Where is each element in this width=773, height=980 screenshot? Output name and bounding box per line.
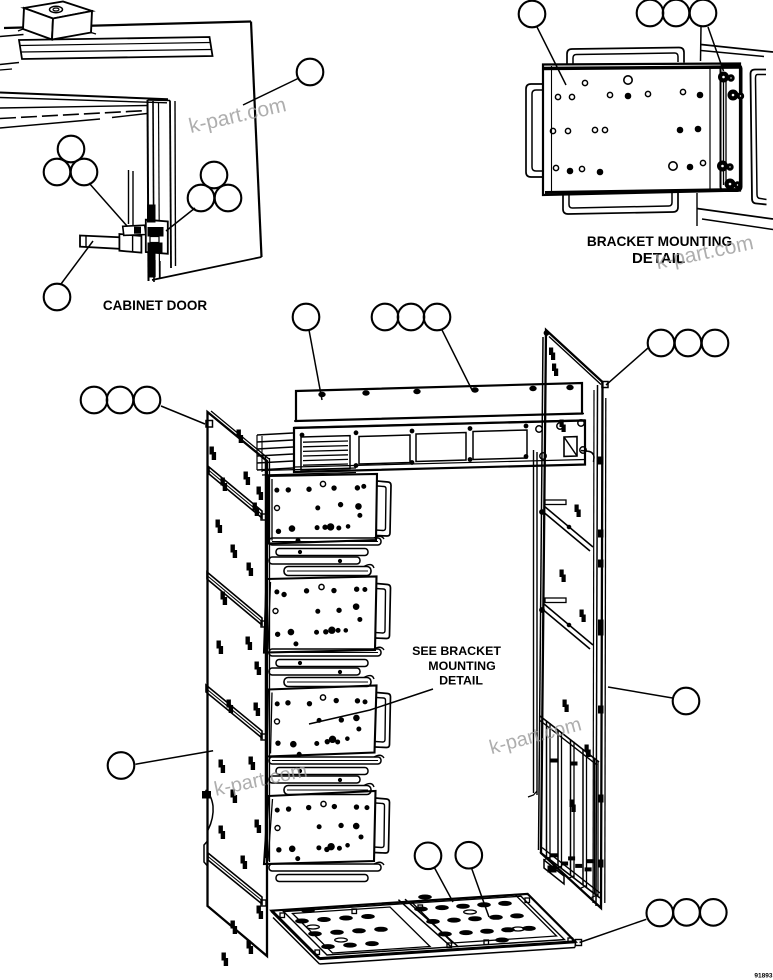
- svg-text:DETAIL: DETAIL: [439, 674, 483, 688]
- svg-text:MOUNTING: MOUNTING: [428, 659, 495, 673]
- svg-text:91893: 91893: [754, 973, 772, 980]
- svg-text:SEE BRACKET: SEE BRACKET: [412, 644, 501, 658]
- svg-text:k-part.com: k-part.com: [187, 93, 289, 138]
- svg-text:CABINET DOOR: CABINET DOOR: [103, 298, 208, 313]
- svg-text:k-part.com: k-part.com: [487, 713, 584, 759]
